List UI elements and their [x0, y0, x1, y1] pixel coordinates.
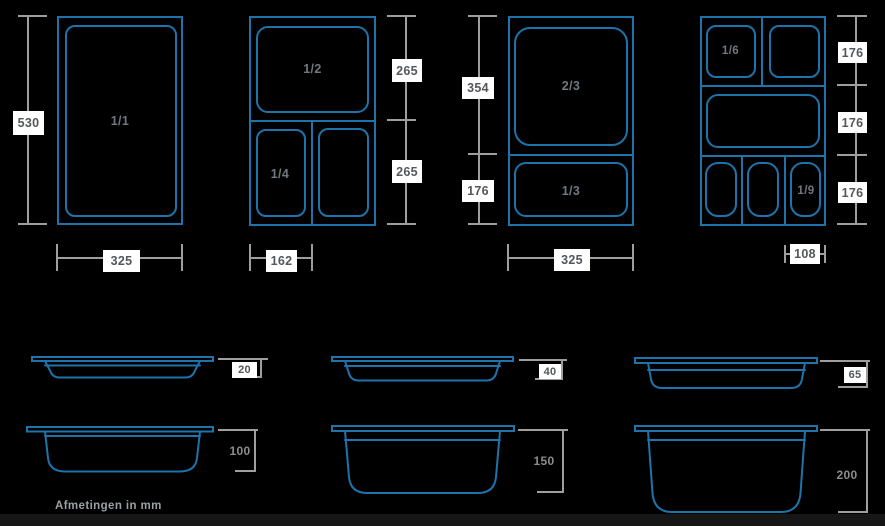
dim-tick [824, 245, 826, 263]
frame-divider [510, 154, 632, 156]
dim-label-height-176-row3: 176 [838, 182, 867, 203]
dim-label-height-530: 530 [13, 111, 44, 135]
gn-1-9-pan-b [747, 162, 779, 217]
dim-tick [235, 470, 256, 472]
pan-profile-depth-40 [330, 354, 516, 386]
pan-profile-depth-65 [633, 355, 819, 393]
dim-label-height-354: 354 [462, 77, 494, 99]
dim-label-height-265-top: 265 [392, 59, 422, 82]
dim-tick [519, 359, 567, 361]
gn-1-2-pan [256, 26, 369, 113]
dim-tick [820, 360, 870, 362]
frame-divider [311, 122, 313, 224]
dim-label-width-108: 108 [790, 244, 820, 264]
pan-profile-depth-100 [25, 424, 215, 478]
bottom-bar [0, 514, 885, 526]
gn-1-6-pan-right [769, 25, 820, 78]
dim-line [562, 429, 564, 493]
dim-label-width-162: 162 [266, 250, 297, 272]
gn-1-3-pan [514, 162, 628, 217]
dim-label-width-325: 325 [554, 249, 590, 271]
dim-label-depth-200: 200 [830, 468, 864, 482]
gn-1-9-pan-a [705, 162, 737, 217]
dim-tick [387, 223, 416, 225]
frame-divider [784, 157, 786, 224]
dim-tick [181, 244, 183, 271]
dim-tick [311, 244, 313, 271]
dim-line [561, 359, 563, 380]
dim-label-height-176: 176 [462, 180, 494, 202]
dim-tick [837, 154, 867, 156]
dim-tick [249, 244, 251, 271]
pan-profile-depth-200 [633, 424, 819, 518]
dim-label-height-265-bottom: 265 [392, 160, 422, 183]
dim-tick [387, 15, 416, 17]
frame-divider [761, 18, 763, 85]
dim-line [866, 360, 868, 388]
dim-tick [838, 386, 868, 388]
dim-label-height-176-row2: 176 [838, 112, 867, 133]
dim-tick [218, 429, 258, 431]
frame-divider [741, 157, 743, 224]
dim-tick [837, 15, 867, 17]
frame-divider [702, 85, 824, 87]
dim-tick [838, 511, 868, 513]
dim-tick [18, 15, 47, 17]
dim-label-width-325: 325 [103, 250, 140, 272]
frame-divider [702, 155, 824, 157]
dim-tick [18, 223, 47, 225]
dim-tick [387, 119, 416, 121]
gn-2-3-pan [514, 27, 628, 146]
gn-1-3-pan-horizontal [706, 94, 820, 148]
dim-tick [537, 491, 564, 493]
dim-tick [837, 223, 867, 225]
gn-1-9-pan-c [790, 162, 821, 217]
units-footnote: Afmetingen in mm [55, 500, 162, 512]
gn-1-4-pan-right [318, 128, 369, 217]
dim-tick [468, 15, 497, 17]
dim-line [260, 358, 262, 378]
dim-label-depth-40: 40 [539, 364, 561, 379]
pan-profile-depth-20 [30, 354, 216, 384]
dim-tick [468, 223, 497, 225]
dim-tick [784, 245, 786, 263]
dim-label-depth-20: 20 [232, 362, 257, 378]
gn-1-1-pan [65, 25, 177, 217]
dim-tick [56, 244, 58, 271]
dim-line [866, 429, 868, 513]
gastronorm-dimensions-diagram: 530 325 1/1 265 265 162 1/2 1/4 354 176 … [0, 0, 885, 526]
dim-tick [837, 84, 867, 86]
dim-tick [468, 153, 497, 155]
pan-profile-depth-150 [330, 424, 516, 498]
gn-1-4-pan-left [256, 129, 306, 217]
dim-tick [820, 429, 870, 431]
dim-tick [518, 429, 568, 431]
dim-tick [632, 244, 634, 271]
gn-1-6-pan-left [706, 25, 756, 78]
dim-label-height-176-row1: 176 [838, 42, 867, 63]
dim-label-depth-65: 65 [844, 367, 866, 383]
dim-label-depth-100: 100 [225, 444, 255, 458]
dim-tick [507, 244, 509, 271]
dim-label-depth-150: 150 [528, 454, 560, 468]
